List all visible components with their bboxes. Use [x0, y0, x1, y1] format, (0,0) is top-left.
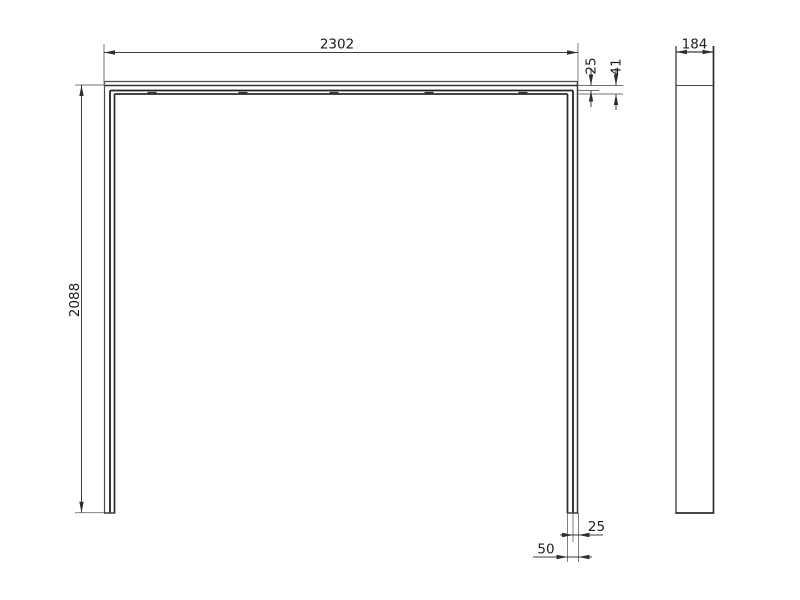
front-view [104, 82, 579, 514]
dim-side-depth: 184 [676, 37, 714, 55]
arrowhead-left [579, 555, 590, 559]
arrowhead-down [589, 75, 593, 86]
dim-leg-front: 25 [560, 519, 605, 537]
arrowhead-up [79, 85, 83, 96]
dim-overall-height-label: 2088 [67, 283, 83, 317]
dim-leg-front-label: 25 [588, 519, 605, 535]
dim-top-rail-total: 41 [609, 58, 625, 110]
arrowhead-right [557, 555, 568, 559]
technical-drawing: 2302 2088 25 41 [0, 0, 800, 600]
dim-leg-width: 50 [533, 542, 592, 560]
arrowhead-up [589, 91, 593, 102]
dim-top-rail-detail: 25 41 [578, 57, 625, 110]
dim-leg-detail: 25 50 [533, 513, 605, 562]
dim-top-rail-front-label: 25 [584, 57, 600, 74]
dim-overall-height: 2088 [67, 85, 105, 513]
side-view [675, 46, 714, 513]
arrowhead-up [614, 94, 618, 105]
dim-side-depth-label: 184 [682, 37, 708, 53]
dim-leg-width-label: 50 [537, 542, 554, 558]
dim-top-rail-total-label: 41 [609, 58, 625, 75]
dim-overall-width: 2302 [104, 37, 578, 85]
arrowhead-left [104, 50, 115, 54]
dim-top-rail-front: 25 [584, 57, 600, 107]
technical-drawing-page: 2302 2088 25 41 [0, 0, 800, 600]
dim-overall-width-label: 2302 [320, 37, 354, 53]
arrowhead-right [567, 50, 578, 54]
arrowhead-down [79, 502, 83, 513]
